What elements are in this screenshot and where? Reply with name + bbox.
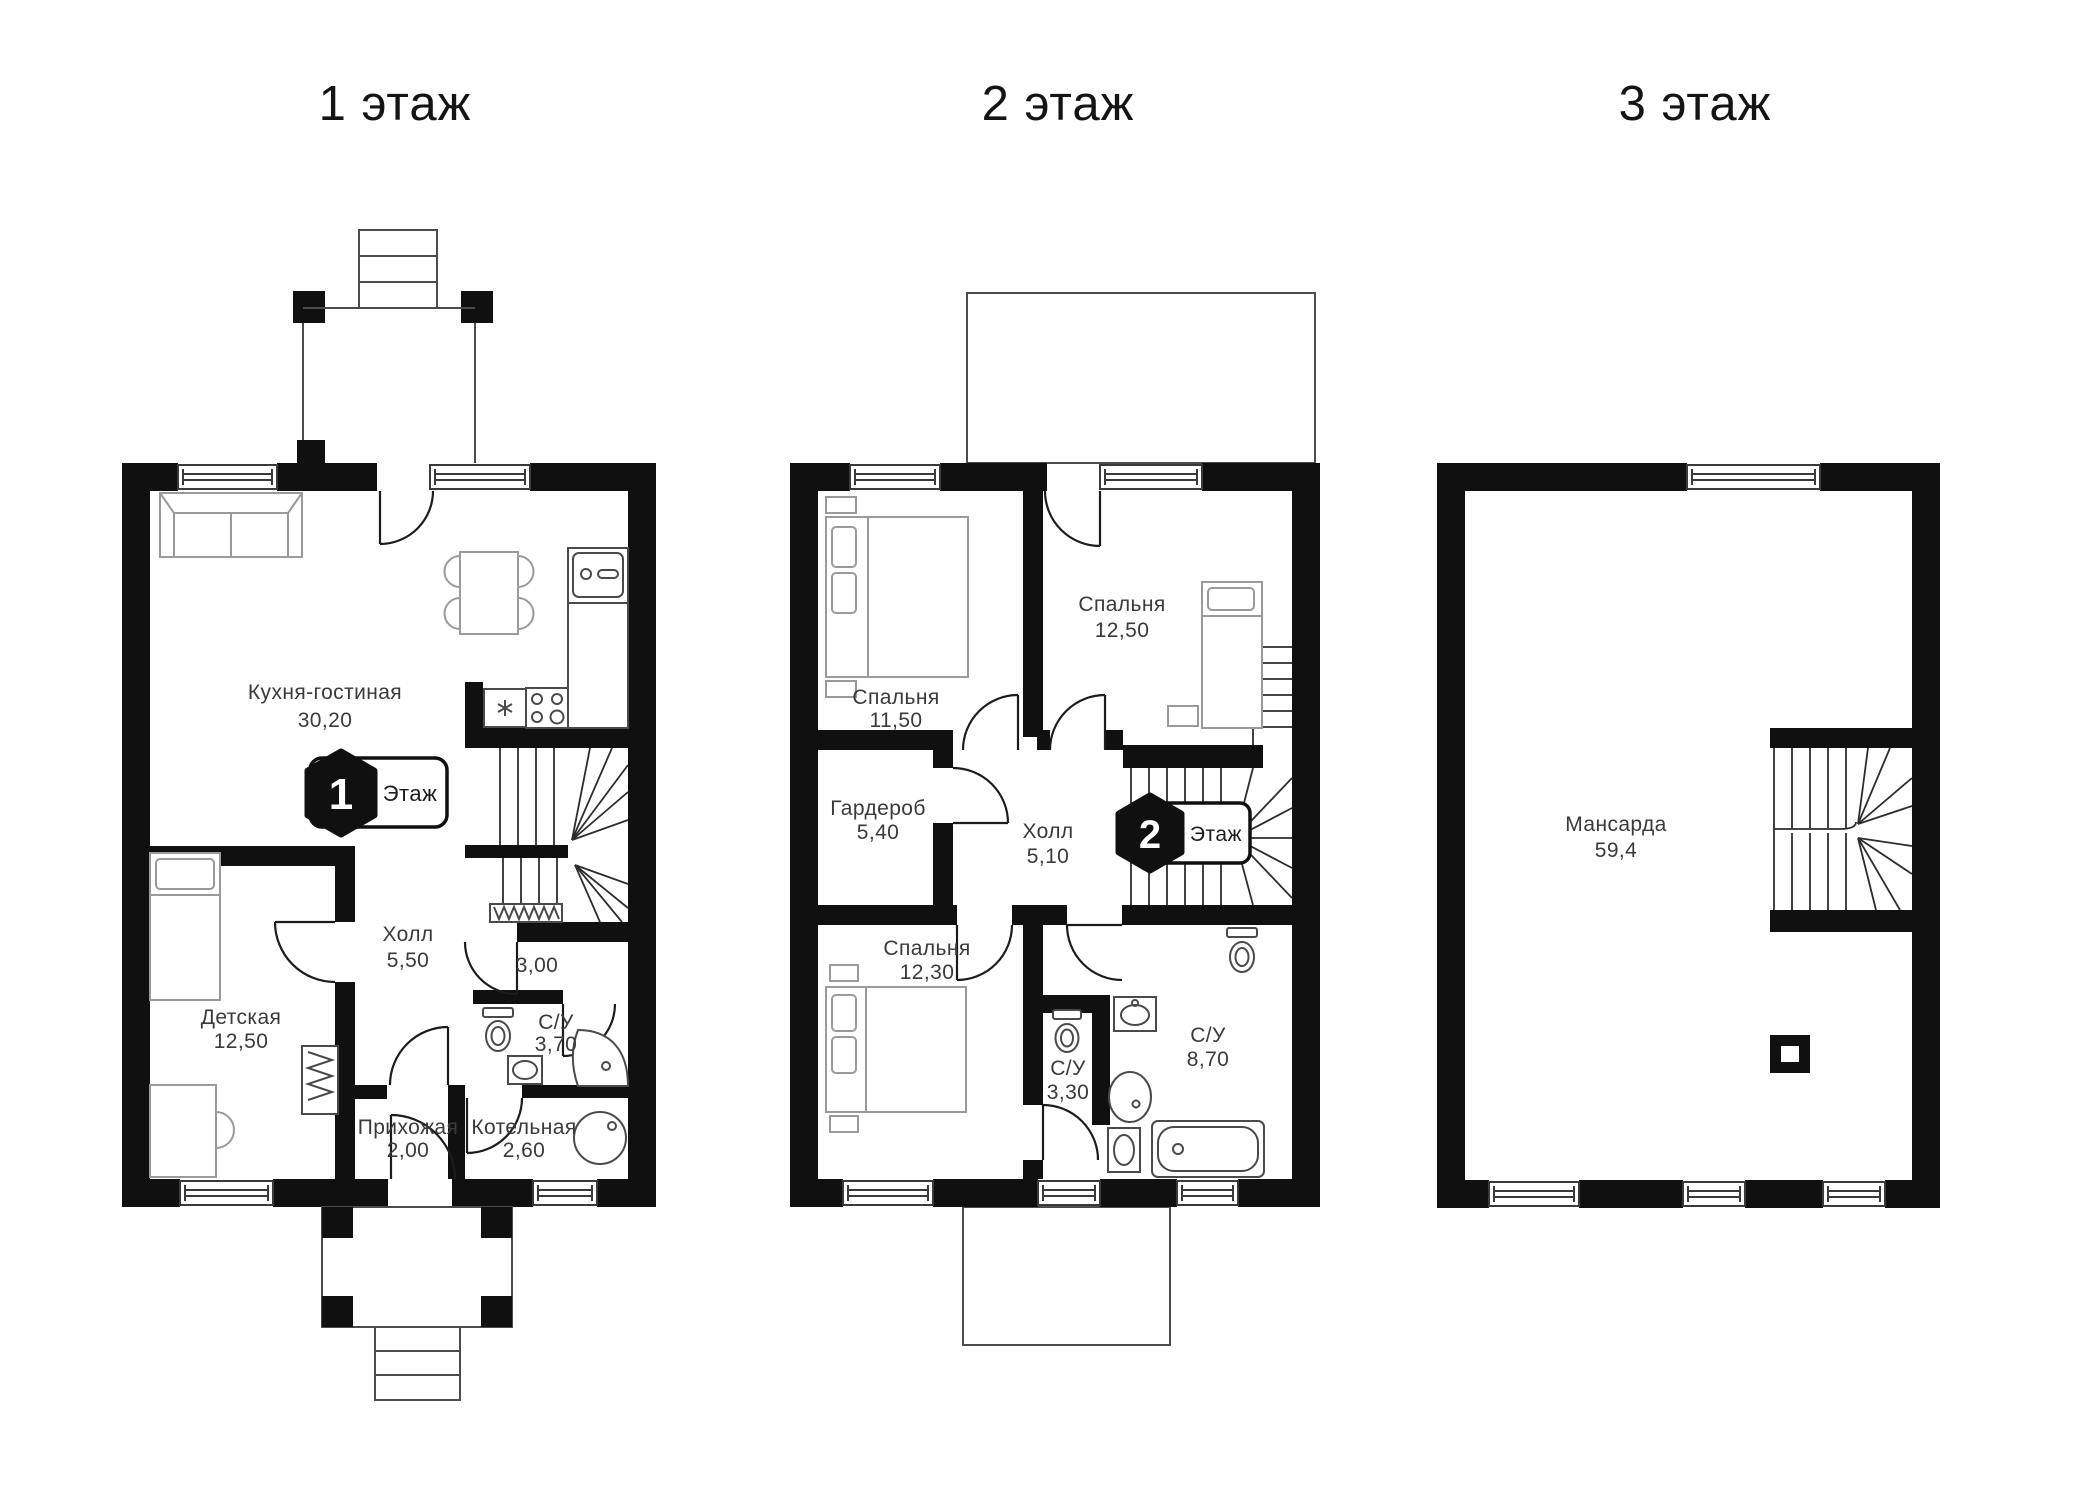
sink-icon-wc870 (1114, 997, 1156, 1031)
floor-plan-canvas: 1 этаж (0, 0, 2100, 1504)
floor3-window-bottom-left (1489, 1182, 1579, 1206)
room-label-attic: Мансарда (1565, 813, 1667, 836)
room-label-bedroom-1150: Спальня (852, 686, 939, 709)
floor2-badge: 2 Этаж (1119, 796, 1250, 870)
room-area-bedroom-1250: 12,50 (1095, 619, 1150, 642)
room-area-bedroom-1150: 11,50 (870, 709, 923, 732)
floor2-balcony (967, 293, 1315, 463)
dishwasher-icon (484, 689, 526, 727)
room-label-wc870: С/У (1190, 1024, 1226, 1047)
sink-icon-floor1 (508, 1056, 542, 1084)
floor3-window-bottom-center (1683, 1182, 1745, 1206)
room-area-kitchen-living: 30,20 (298, 709, 353, 732)
floor3-stairs-icon (1774, 748, 1912, 910)
room-area-wardrobe: 5,40 (857, 821, 899, 844)
room-label-wardrobe: Гардероб (830, 797, 926, 820)
room-label-childrens: Детская (201, 1006, 282, 1029)
floor1-window-bottom-left (180, 1181, 273, 1205)
floor3-window-top (1687, 465, 1820, 489)
chimney-icon (1770, 1035, 1810, 1073)
room-area-wc330: 3,30 (1047, 1081, 1089, 1104)
room-area-entry: 2,00 (387, 1139, 429, 1162)
bed-icon-bedroom-1150 (826, 497, 968, 697)
floor3-title: 3 этаж (1619, 77, 1772, 131)
floor1-badge: 1 Этаж (308, 752, 447, 834)
room-label-bedroom-1250: Спальня (1078, 593, 1165, 616)
toilet-icon-wc330 (1053, 1010, 1081, 1052)
room-label-wc330: С/У (1050, 1057, 1086, 1080)
desk-icon (150, 1085, 234, 1177)
stove-icon (526, 688, 568, 728)
corner-bathtub-icon (573, 1030, 628, 1086)
room-label-kitchen-living: Кухня-гостиная (248, 681, 402, 704)
room-area-hall-2: 5,10 (1027, 845, 1069, 868)
kitchen-counter-icon (568, 548, 628, 728)
floor3-window-bottom-right (1823, 1182, 1885, 1206)
floor1-title: 1 этаж (319, 77, 472, 131)
room-area-hall-1: 5,50 (387, 949, 429, 972)
floor3-outer-walls (1437, 463, 1940, 1208)
floor1-entry-porch-top (293, 230, 493, 463)
room-area-childrens: 12,50 (214, 1030, 269, 1053)
floor-plan-page: 1 этаж (0, 0, 2100, 1504)
floor2-window-top-left (850, 465, 940, 489)
sofa-icon (160, 493, 302, 557)
sink-icon-wc330 (1108, 1128, 1140, 1172)
floor1-window-top-right (430, 465, 530, 489)
corner-basin-icon-wc870 (1109, 1072, 1151, 1122)
bed-icon-bedroom-1230 (826, 965, 966, 1132)
floor1-window-top-left (178, 465, 277, 489)
room-label-hall-2: Холл (1022, 820, 1073, 843)
room-area-boiler: 2,60 (503, 1139, 545, 1162)
floor2-badge-label: Этаж (1190, 823, 1242, 846)
floor1-porch-bottom (322, 1207, 512, 1400)
bathtub-icon (1152, 1121, 1264, 1177)
room-label-hall-1: Холл (382, 923, 433, 946)
bed-icon-childrens (150, 853, 220, 1000)
room-label-boiler: Котельная (471, 1116, 576, 1139)
room-label-entry: Прихожая (358, 1116, 459, 1139)
floor1-stairs-icon (500, 748, 628, 922)
floor1-badge-number: 1 (329, 770, 353, 819)
floor1-wardrobe-hangers-icon (490, 904, 562, 922)
floor2-window-bottom-center (1038, 1181, 1100, 1205)
room-label-wc-1: С/У (538, 1011, 574, 1034)
toilet-icon-wc870 (1227, 928, 1257, 972)
bed-icon-bedroom-1250 (1168, 582, 1262, 728)
floor2-plan: 2 этаж (790, 77, 1320, 1345)
room-area-bedroom-1230: 12,30 (900, 961, 955, 984)
room-label-bedroom-1230: Спальня (883, 937, 970, 960)
floor2-badge-number: 2 (1139, 813, 1161, 857)
dining-table-icon (444, 552, 533, 634)
floor1-window-bottom-right (533, 1181, 597, 1205)
floor1-plan: 1 этаж (122, 77, 656, 1400)
room-area-wc870: 8,70 (1187, 1048, 1229, 1071)
floor2-window-top-right (1100, 465, 1202, 489)
floor2-window-bottom-right (1177, 1181, 1238, 1205)
floor2-terrace (963, 1207, 1170, 1345)
childrens-wardrobe-hangers-icon (302, 1046, 338, 1114)
room-area-wc-1: 3,70 (535, 1033, 577, 1056)
floor2-window-bottom-left (843, 1181, 933, 1205)
toilet-icon-floor1 (483, 1008, 513, 1051)
floor2-title: 2 этаж (982, 77, 1135, 131)
room-area-corridor: 3,00 (516, 954, 558, 977)
floor1-badge-label: Этаж (383, 781, 438, 806)
boiler-icon (574, 1112, 626, 1164)
floor3-plan: 3 этаж (1437, 77, 1940, 1208)
room-area-attic: 59,4 (1595, 839, 1637, 862)
